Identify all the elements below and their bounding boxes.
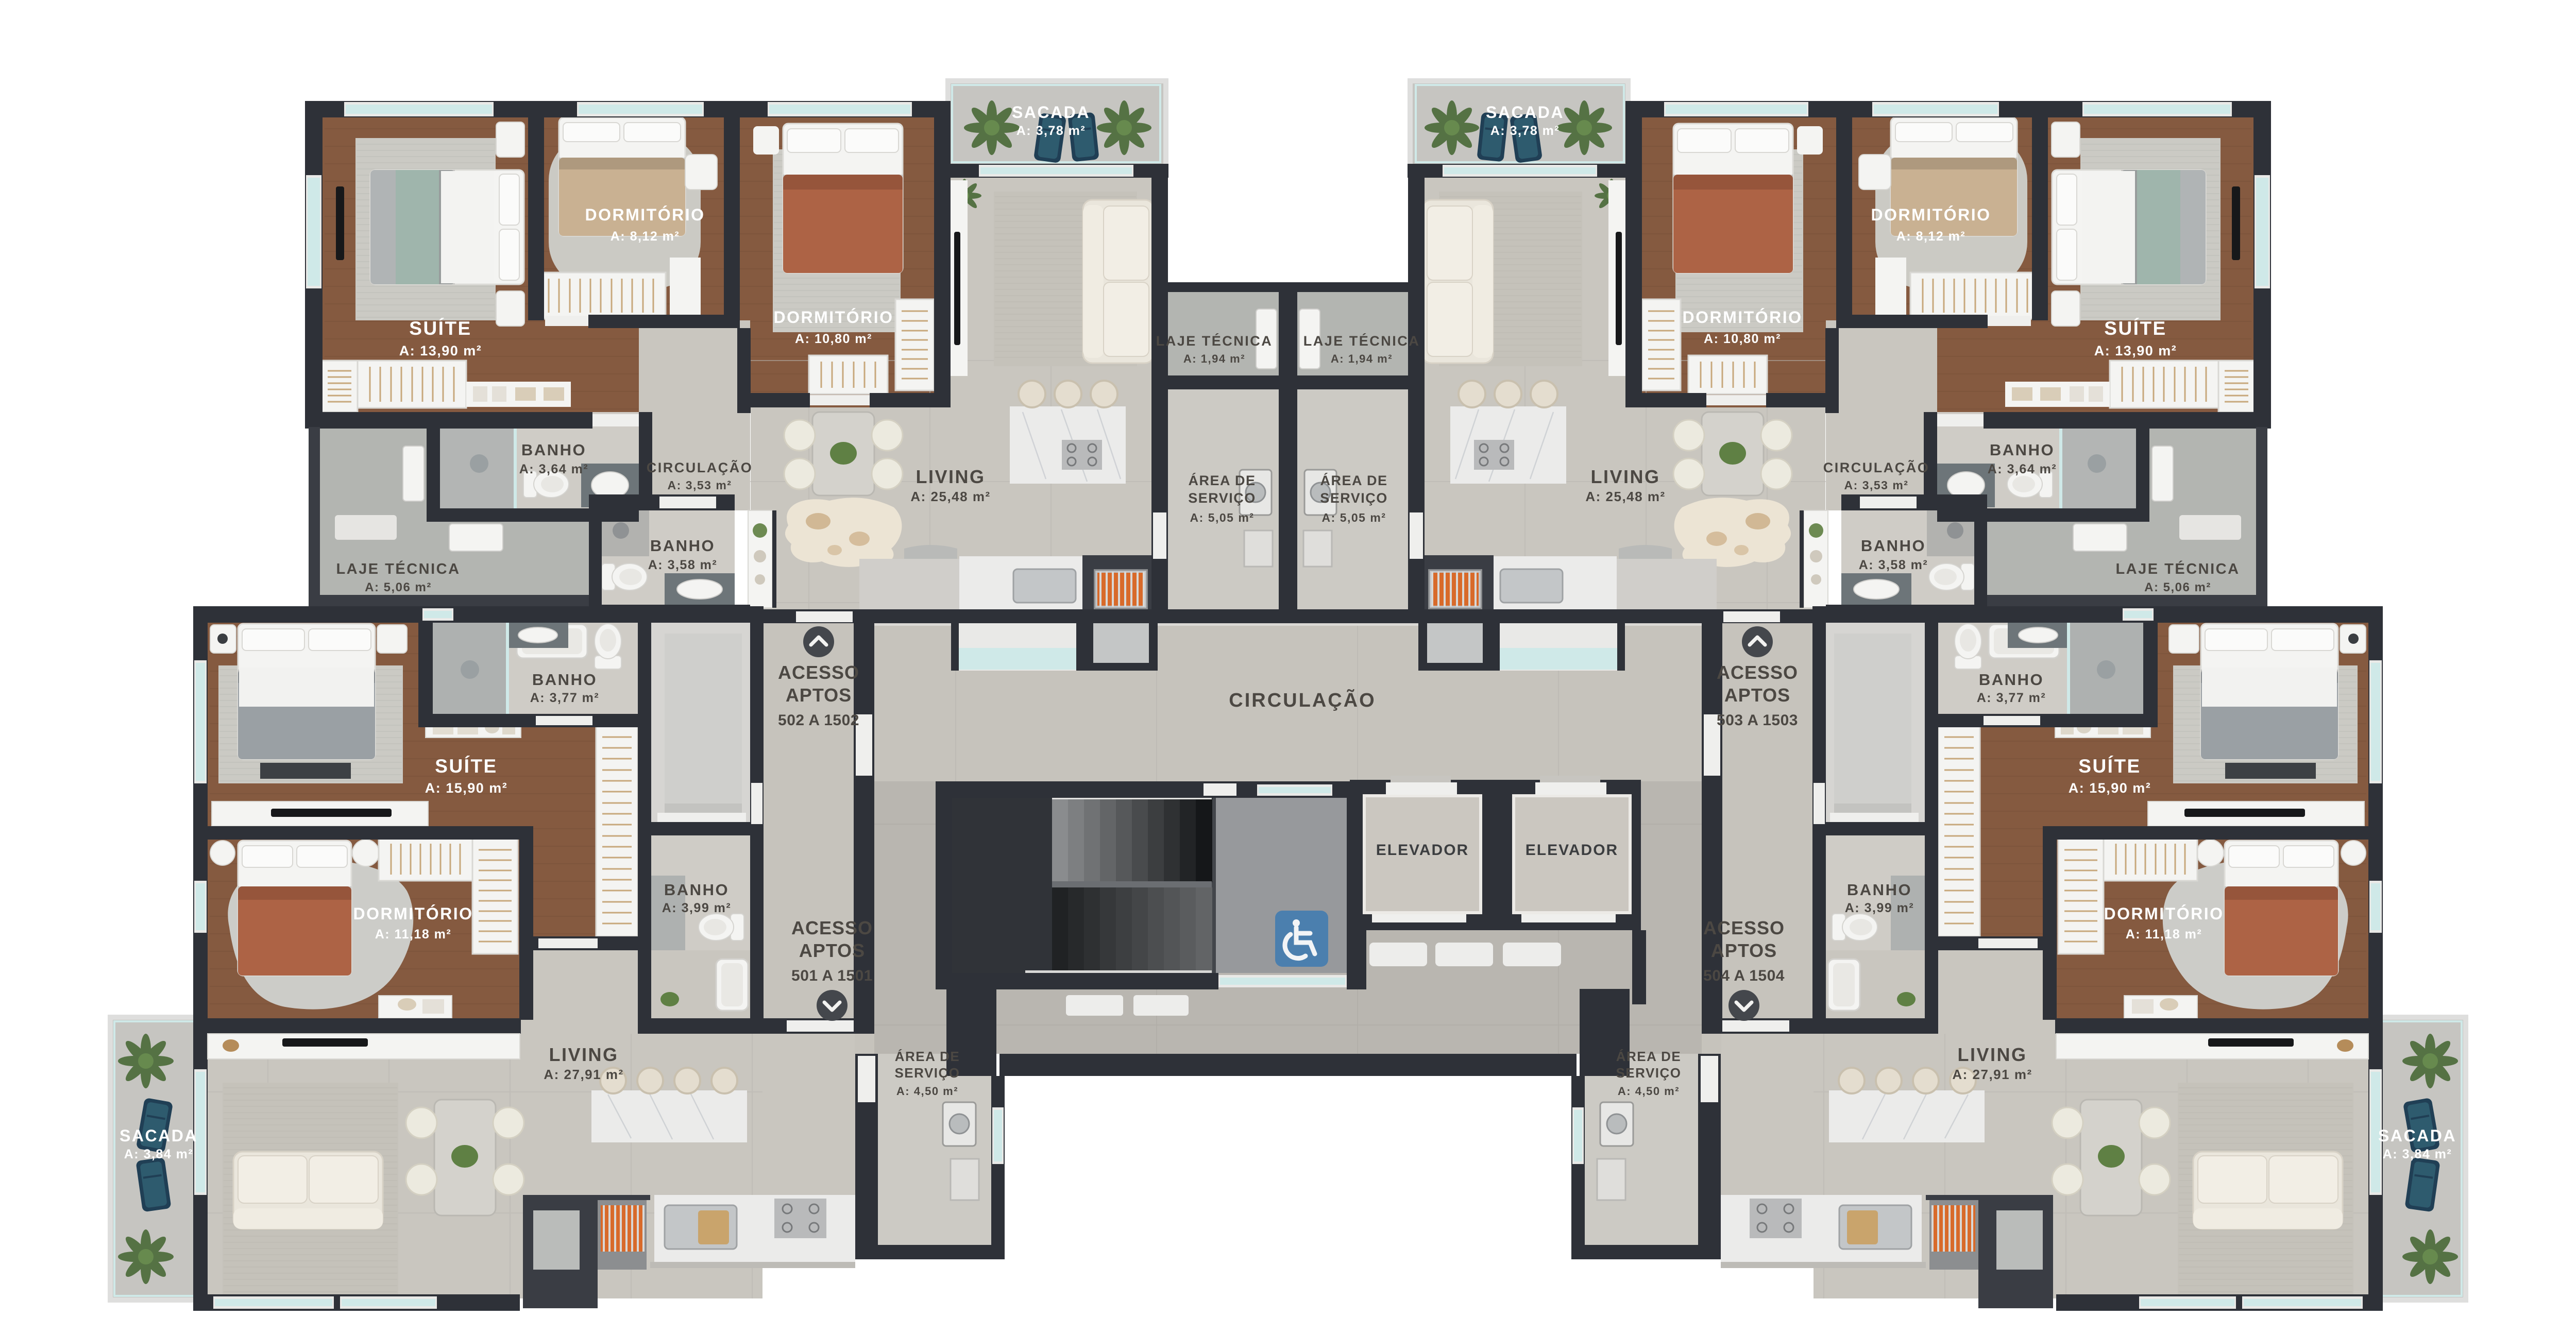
svg-text:ELEVADOR: ELEVADOR — [1526, 842, 1618, 859]
svg-text:ACESSO: ACESSO — [791, 917, 873, 938]
svg-text:A: 11,18 m²: A: 11,18 m² — [2126, 927, 2202, 942]
svg-text:BANHO: BANHO — [650, 537, 715, 555]
svg-text:APTOS: APTOS — [799, 940, 865, 961]
svg-text:BANHO: BANHO — [1847, 881, 1912, 899]
svg-text:LIVING: LIVING — [916, 466, 985, 487]
svg-text:A: 25,48 m²: A: 25,48 m² — [1585, 489, 1665, 504]
svg-text:SERVIÇO: SERVIÇO — [894, 1065, 960, 1081]
svg-text:CIRCULAÇÃO: CIRCULAÇÃO — [1823, 459, 1930, 475]
svg-text:A: 11,18 m²: A: 11,18 m² — [375, 927, 452, 942]
svg-text:A: 15,90 m²: A: 15,90 m² — [2069, 780, 2151, 796]
svg-text:ÁREA DE: ÁREA DE — [1616, 1049, 1682, 1064]
svg-text:ÁREA DE: ÁREA DE — [1188, 472, 1256, 488]
svg-text:LIVING: LIVING — [1957, 1044, 2027, 1065]
svg-text:LIVING: LIVING — [1590, 466, 1660, 487]
svg-text:BANHO: BANHO — [664, 881, 729, 899]
svg-text:BANHO: BANHO — [1990, 441, 2055, 459]
svg-text:SERVIÇO: SERVIÇO — [1616, 1065, 1681, 1081]
svg-text:A: 5,05 m²: A: 5,05 m² — [1190, 511, 1255, 524]
svg-text:A: 8,12 m²: A: 8,12 m² — [611, 229, 680, 244]
svg-text:501 A 1501: 501 A 1501 — [791, 967, 873, 984]
svg-text:A: 27,91 m²: A: 27,91 m² — [1952, 1067, 2032, 1082]
svg-text:ELEVADOR: ELEVADOR — [1376, 842, 1469, 859]
svg-text:DORMITÓRIO: DORMITÓRIO — [353, 904, 473, 923]
svg-text:A: 3,53 m²: A: 3,53 m² — [1844, 478, 1909, 492]
svg-text:A: 3,78 m²: A: 3,78 m² — [1490, 124, 1560, 138]
svg-text:A: 3,78 m²: A: 3,78 m² — [1016, 124, 1086, 138]
svg-text:ÁREA DE: ÁREA DE — [895, 1049, 960, 1064]
svg-text:A: 25,48 m²: A: 25,48 m² — [910, 489, 990, 504]
svg-text:APTOS: APTOS — [1724, 685, 1790, 706]
svg-text:SUÍTE: SUÍTE — [409, 318, 471, 339]
svg-text:A: 13,90 m²: A: 13,90 m² — [399, 343, 482, 358]
svg-text:DORMITÓRIO: DORMITÓRIO — [585, 206, 705, 224]
svg-text:SACADA: SACADA — [1012, 103, 1090, 122]
svg-text:DORMITÓRIO: DORMITÓRIO — [2104, 904, 2224, 923]
svg-text:APTOS: APTOS — [786, 685, 852, 706]
svg-text:DORMITÓRIO: DORMITÓRIO — [1871, 206, 1991, 224]
svg-text:BANHO: BANHO — [1861, 537, 1926, 555]
svg-text:502 A 1502: 502 A 1502 — [778, 712, 859, 729]
svg-text:A: 3,77 m²: A: 3,77 m² — [530, 691, 599, 705]
svg-text:SACADA: SACADA — [2378, 1126, 2456, 1145]
svg-text:BANHO: BANHO — [521, 441, 586, 459]
svg-text:BANHO: BANHO — [1979, 671, 2044, 689]
svg-text:ACESSO: ACESSO — [1703, 917, 1785, 938]
svg-text:A: 5,05 m²: A: 5,05 m² — [1322, 511, 1386, 524]
svg-text:A: 10,80 m²: A: 10,80 m² — [1704, 332, 1781, 346]
svg-text:A: 4,50 m²: A: 4,50 m² — [896, 1085, 958, 1098]
svg-text:SUÍTE: SUÍTE — [435, 756, 497, 777]
svg-text:A: 1,94 m²: A: 1,94 m² — [1183, 352, 1245, 365]
svg-text:A: 3,99 m²: A: 3,99 m² — [662, 901, 731, 915]
svg-text:CIRCULAÇÃO: CIRCULAÇÃO — [1229, 689, 1376, 711]
svg-text:LAJE TÉCNICA: LAJE TÉCNICA — [1156, 333, 1273, 349]
svg-text:A: 1,94 m²: A: 1,94 m² — [1331, 352, 1393, 365]
svg-text:SUÍTE: SUÍTE — [2104, 318, 2166, 339]
svg-text:A: 15,90 m²: A: 15,90 m² — [425, 780, 508, 796]
svg-text:ÁREA DE: ÁREA DE — [1320, 472, 1387, 488]
svg-text:A: 5,06 m²: A: 5,06 m² — [365, 580, 432, 594]
svg-text:LAJE TÉCNICA: LAJE TÉCNICA — [1303, 333, 1420, 349]
svg-text:A: 3,58 m²: A: 3,58 m² — [648, 558, 717, 572]
svg-text:A: 3,64 m²: A: 3,64 m² — [519, 462, 588, 476]
svg-text:A: 3,84 m²: A: 3,84 m² — [2383, 1147, 2452, 1161]
svg-text:DORMITÓRIO: DORMITÓRIO — [774, 308, 894, 327]
svg-text:ACESSO: ACESSO — [778, 662, 859, 683]
svg-text:APTOS: APTOS — [1711, 940, 1777, 961]
svg-text:SUÍTE: SUÍTE — [2078, 756, 2141, 777]
svg-text:SACADA: SACADA — [120, 1126, 198, 1145]
svg-text:BANHO: BANHO — [532, 671, 597, 689]
svg-text:LIVING: LIVING — [549, 1044, 618, 1065]
svg-text:LAJE TÉCNICA: LAJE TÉCNICA — [2115, 560, 2240, 577]
svg-text:DORMITÓRIO: DORMITÓRIO — [1683, 308, 1803, 327]
svg-text:A: 3,58 m²: A: 3,58 m² — [1859, 558, 1928, 572]
svg-text:A: 3,53 m²: A: 3,53 m² — [668, 478, 732, 492]
svg-text:A: 10,80 m²: A: 10,80 m² — [795, 332, 872, 346]
svg-text:A: 8,12 m²: A: 8,12 m² — [1896, 229, 1965, 244]
svg-text:SACADA: SACADA — [1486, 103, 1564, 122]
svg-text:A: 3,77 m²: A: 3,77 m² — [1977, 691, 2046, 705]
svg-text:A: 3,99 m²: A: 3,99 m² — [1845, 901, 1914, 915]
svg-text:A: 4,50 m²: A: 4,50 m² — [1618, 1085, 1680, 1098]
svg-text:A: 5,06 m²: A: 5,06 m² — [2144, 580, 2211, 594]
svg-text:A: 13,90 m²: A: 13,90 m² — [2094, 343, 2177, 358]
svg-text:A: 3,64 m²: A: 3,64 m² — [1988, 462, 2057, 476]
svg-text:A: 3,84 m²: A: 3,84 m² — [124, 1147, 193, 1161]
svg-text:SERVIÇO: SERVIÇO — [1188, 490, 1256, 506]
svg-text:504 A 1504: 504 A 1504 — [1703, 967, 1785, 984]
svg-text:ACESSO: ACESSO — [1717, 662, 1798, 683]
svg-text:503 A 1503: 503 A 1503 — [1717, 712, 1798, 729]
svg-text:SERVIÇO: SERVIÇO — [1320, 490, 1388, 506]
svg-text:A: 27,91 m²: A: 27,91 m² — [544, 1067, 623, 1082]
svg-text:LAJE TÉCNICA: LAJE TÉCNICA — [336, 560, 460, 577]
svg-text:CIRCULAÇÃO: CIRCULAÇÃO — [647, 459, 753, 475]
